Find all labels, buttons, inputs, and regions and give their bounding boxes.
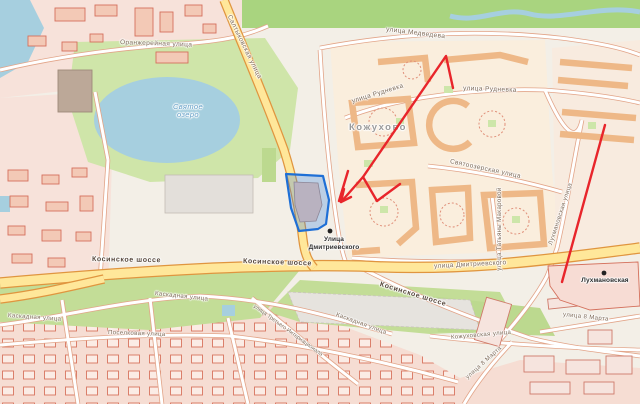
red-arrow-annotation xyxy=(339,56,605,282)
red-line-right xyxy=(562,125,605,282)
map-canvas[interactable]: Оранжерейная улица Салтыковская улица ул… xyxy=(0,0,640,404)
annotation-layer xyxy=(0,0,640,404)
red-arrow-long-stroke xyxy=(363,56,453,177)
